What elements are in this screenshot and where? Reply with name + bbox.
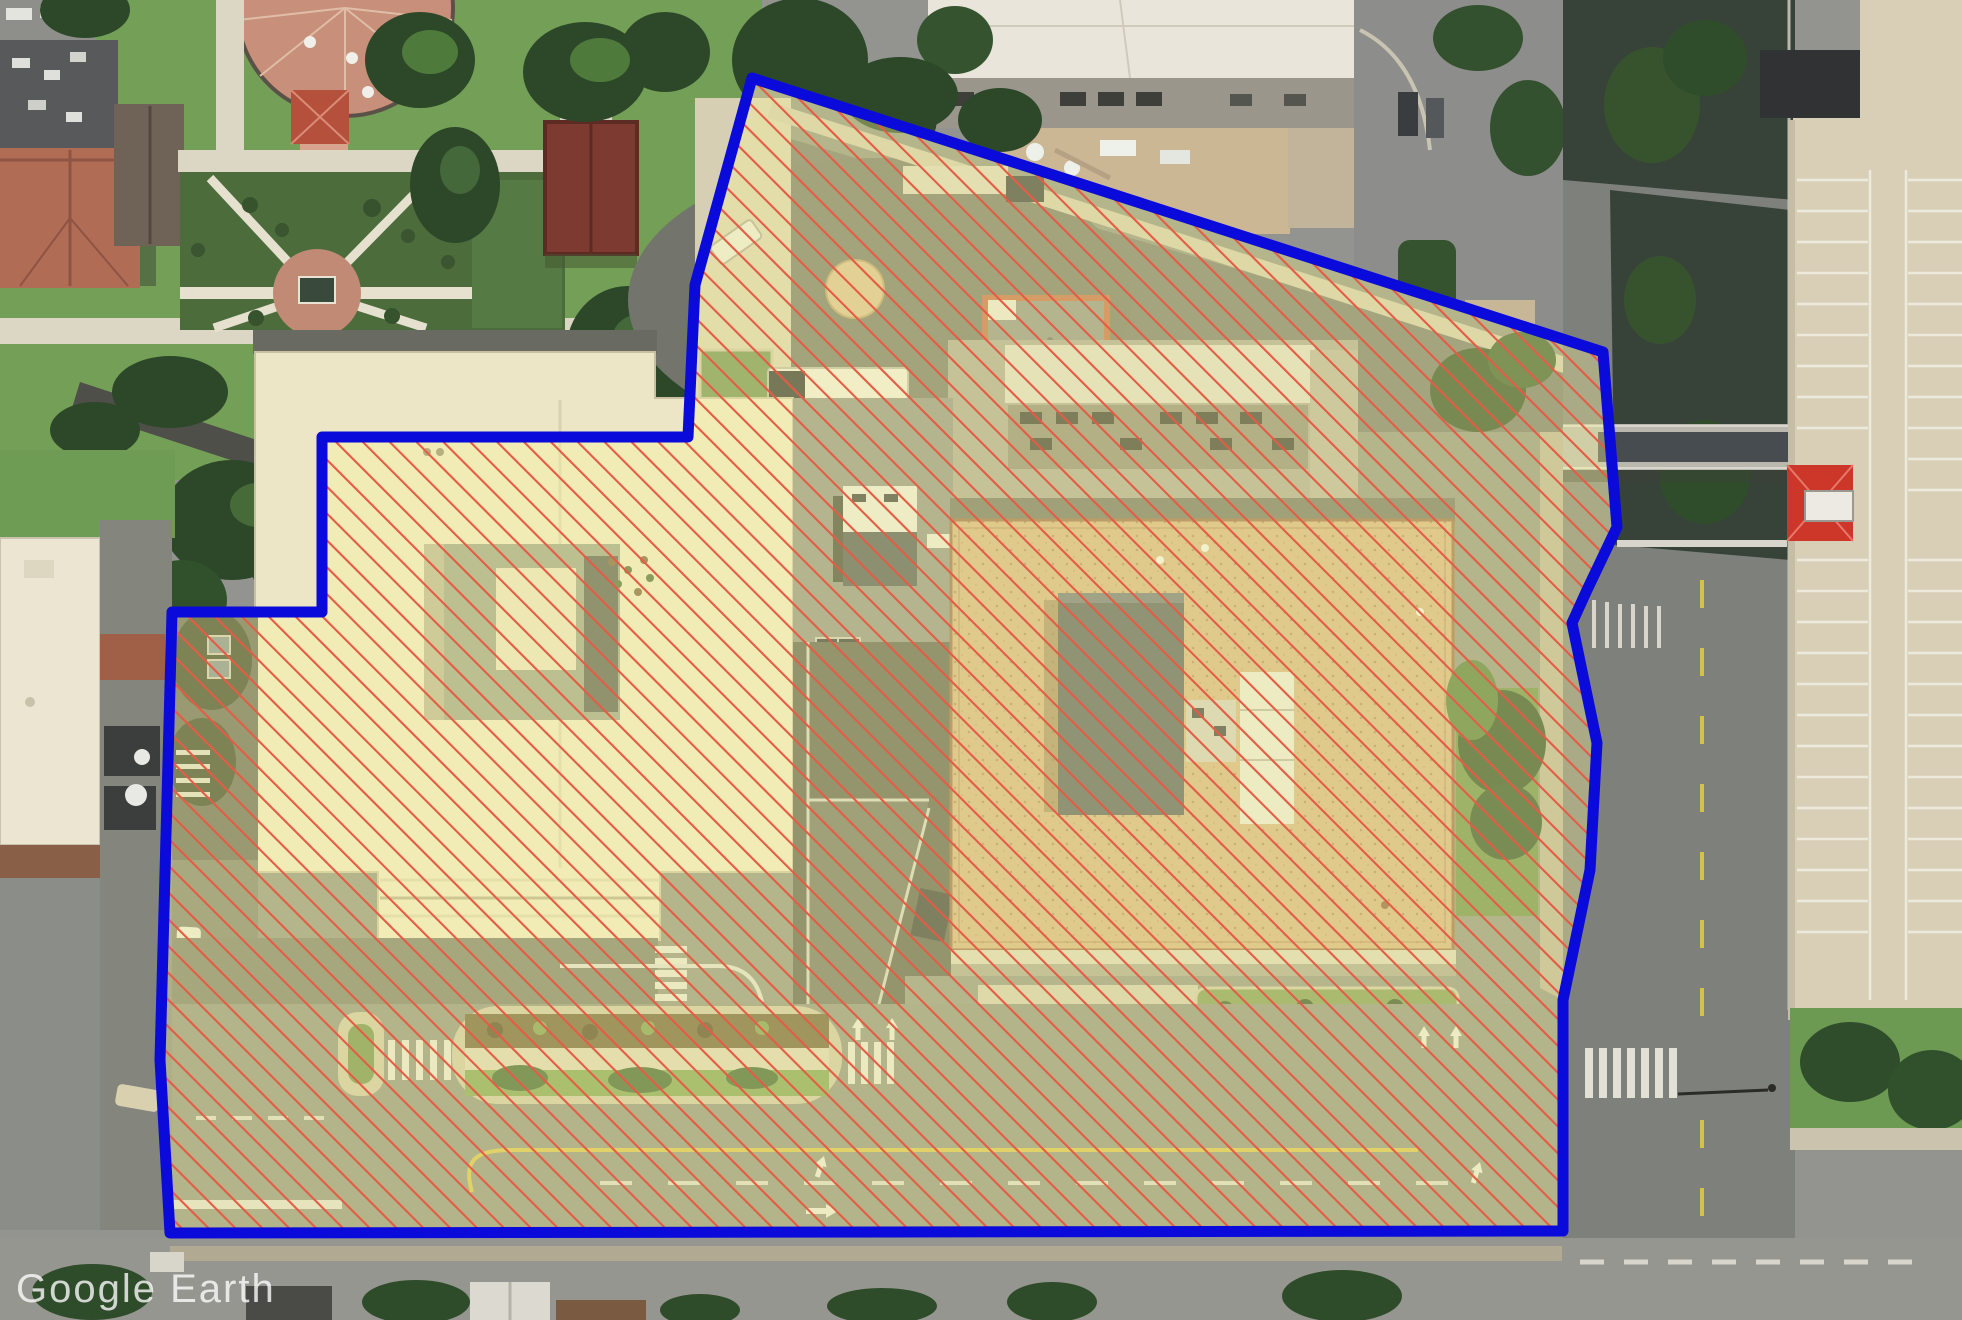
stop-line-east-street: [1617, 540, 1787, 547]
formal-garden: [180, 172, 565, 337]
maroon-roof-building: [545, 100, 637, 268]
gray-roof-building: [0, 40, 118, 148]
garden-pavilion-roof: [291, 90, 349, 144]
cream-building-west: [0, 538, 100, 878]
google-earth-canvas[interactable]: Google Earth: [0, 0, 1962, 1320]
parking-structure-east: [1760, 0, 1962, 1150]
red-roof-kiosk: [1787, 465, 1853, 541]
south-outside-strip: [0, 1238, 1962, 1320]
google-earth-watermark: Google Earth: [16, 1267, 276, 1311]
west-outside-strip: [0, 450, 175, 1230]
